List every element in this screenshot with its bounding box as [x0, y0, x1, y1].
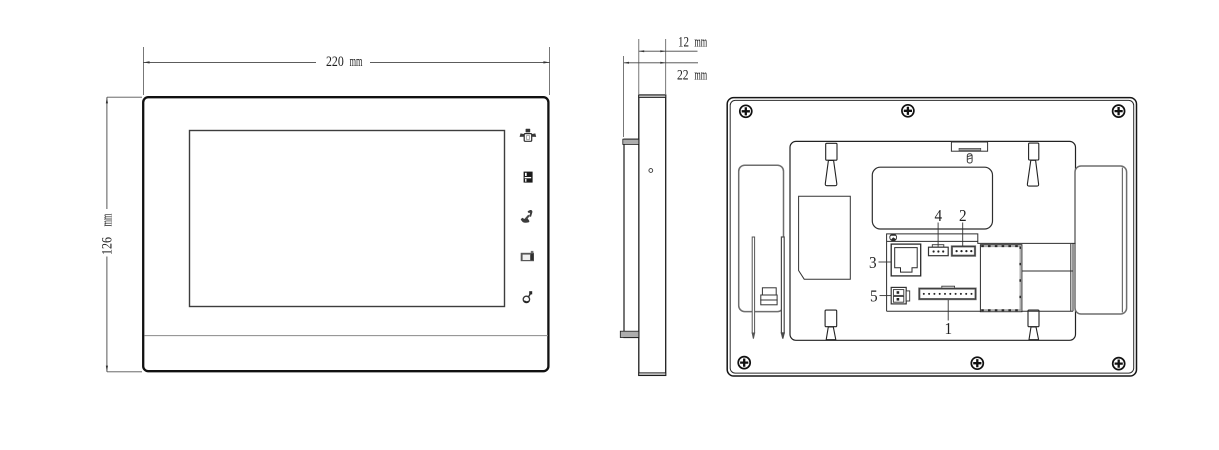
- svg-text:22: 22: [677, 68, 689, 84]
- svg-text:mm: mm: [694, 68, 707, 84]
- svg-text:220: 220: [326, 54, 344, 70]
- svg-text:5: 5: [870, 287, 878, 306]
- svg-text:mm: mm: [100, 213, 116, 226]
- svg-text:2: 2: [959, 206, 967, 225]
- svg-text:mm: mm: [694, 35, 707, 51]
- svg-text:3: 3: [869, 253, 877, 272]
- svg-text:126: 126: [100, 237, 116, 255]
- svg-text:mm: mm: [350, 54, 363, 70]
- svg-text:1: 1: [945, 319, 953, 338]
- svg-text:12: 12: [678, 35, 689, 51]
- svg-text:4: 4: [935, 206, 943, 225]
